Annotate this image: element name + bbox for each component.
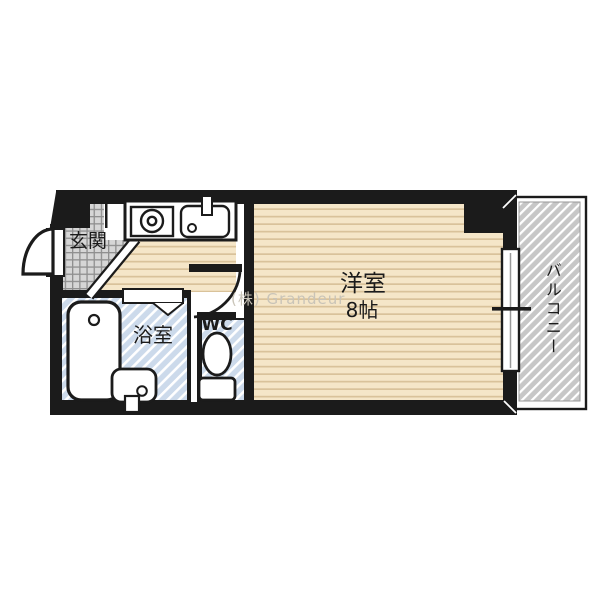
stove-icon (131, 207, 173, 236)
wc-label: WC (196, 317, 238, 335)
kitchen-counter (125, 196, 236, 240)
watermark: (株) Grandeur (231, 288, 345, 309)
wall-bathroom-right (187, 291, 191, 402)
wall-top-left-block (50, 192, 90, 228)
bath-wc-divider (191, 298, 197, 402)
bathroom-label: 浴室 (124, 325, 182, 346)
wall-corner-notch (464, 192, 517, 233)
toilet-icon (199, 333, 235, 400)
floor-plan: 玄関 浴室 WC 洋室 8帖 バルコニー (株) Grandeur (0, 0, 600, 600)
entrance-label: 玄関 (62, 232, 114, 252)
window-center-mark-icon (492, 307, 531, 311)
faucet-icon (202, 196, 212, 215)
tile-edge-line (105, 202, 108, 228)
balcony-label: バルコニー (543, 262, 560, 357)
